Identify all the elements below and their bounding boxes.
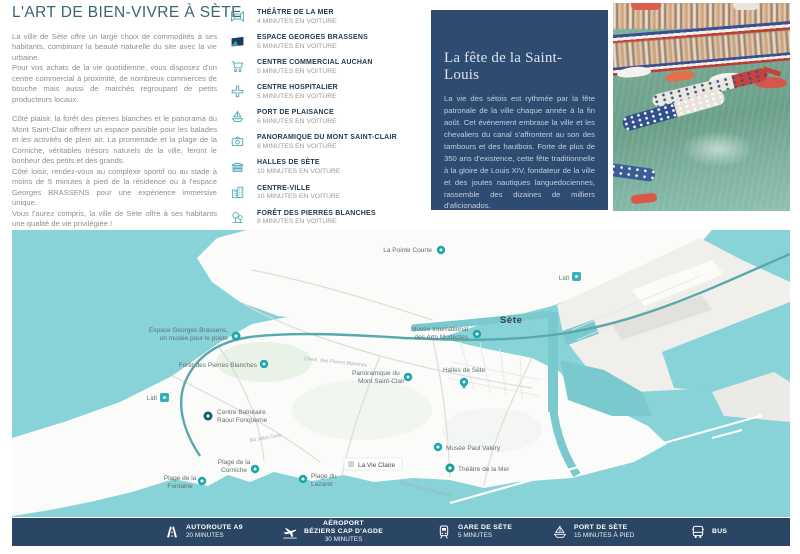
amenity-label: HALLES DE SÈTE	[257, 159, 340, 168]
transport-label: BUS	[712, 528, 727, 536]
map-pin-plage-corniche	[251, 465, 259, 473]
intro-paragraph: Vous l'aurez compris, la ville de Sète o…	[12, 209, 217, 230]
amenity-item: PORT DE PLAISANCE 6 MINUTES EN VOITURE	[229, 109, 424, 127]
amenity-time: 5 MINUTES EN VOITURE	[257, 43, 368, 52]
transport-item-autoroute: AUTOROUTE A9 20 MINUTES	[164, 518, 243, 546]
amenity-time: 10 MINUTES EN VOITURE	[257, 193, 340, 202]
amenity-time: 6 MINUTES EN VOITURE	[257, 118, 337, 127]
transport-time: 5 MINUTES	[458, 532, 512, 540]
map-label-centre-balneaire: Centre Balnéaire	[217, 409, 266, 416]
photo-awning	[733, 3, 759, 10]
map-pin-lidl-west-dot	[163, 396, 166, 399]
amenity-item: CENTRE-VILLE 10 MINUTES EN VOITURE	[229, 185, 424, 203]
medical-cross-icon	[229, 84, 253, 100]
transport-label: PORT DE SÈTE	[574, 524, 634, 532]
map-label-plage-lazaret: Plage du	[311, 473, 337, 480]
map-pin-la-pointe-courte	[437, 246, 445, 254]
map-label-panoramique: Panoramique du	[352, 370, 400, 377]
amenity-item: CENTRE HOSPITALIER 5 MINUTES EN VOITURE	[229, 84, 424, 102]
transport-time: 30 MINUTES	[304, 536, 383, 544]
map-pin-musee-arts-modestes	[473, 330, 481, 338]
market-hall-icon	[229, 159, 253, 175]
amenity-time: 5 MINUTES EN VOITURE	[257, 68, 373, 77]
amenity-time: 8 MINUTES EN VOITURE	[257, 218, 376, 227]
map-pin-espace-brassens	[232, 332, 241, 341]
amenity-label: PORT DE PLAISANCE	[257, 109, 337, 118]
map-label-la-pointe-courte: La Pointe Courte	[383, 247, 432, 254]
feature-body: La vie des sétois est rythmée par la fêt…	[444, 93, 595, 212]
transport-item-gare: GARE DE SÈTE 5 MINUTES	[436, 518, 512, 546]
map-label-lidl-west: Lidl	[147, 395, 158, 402]
amenities-list: THÉÂTRE DE LA MER 4 MINUTES EN VOITURE E…	[229, 9, 424, 235]
map-label-foret-pierres-blanches: Forêt des Pierres Blanches	[179, 362, 258, 369]
amenity-label: FORÊT DES PIERRES BLANCHES	[257, 210, 376, 219]
map-label-espace-brassens: un musée pour le poète	[160, 335, 229, 342]
intro-section: L'ART DE BIEN-VIVRE À SÈTE La ville de S…	[12, 4, 217, 229]
intro-paragraph: Côté loisir, rendez-vous au complexe spo…	[12, 167, 217, 209]
intro-paragraph: Pour vos achats de la vie quotidienne, v…	[12, 63, 217, 105]
city-map: La Vie Claire La Pointe Courte Sète Musé…	[12, 230, 790, 517]
amenity-time: 4 MINUTES EN VOITURE	[257, 18, 337, 27]
transport-time: 15 MINUTES À PIED	[574, 532, 634, 540]
sailboat-icon	[229, 109, 253, 125]
amenity-label: CENTRE HOSPITALIER	[257, 84, 338, 93]
transport-label: AUTOROUTE A9	[186, 524, 243, 532]
page-title: L'ART DE BIEN-VIVRE À SÈTE	[12, 4, 217, 22]
amenity-item: HALLES DE SÈTE 10 MINUTES EN VOITURE	[229, 159, 424, 177]
amenity-label: PANORAMIQUE DU MONT SAINT-CLAIR	[257, 134, 397, 143]
amenity-time: 10 MINUTES EN VOITURE	[257, 168, 340, 177]
feature-box: La fête de la Saint-Louis La vie des sét…	[431, 10, 608, 210]
theater-icon	[229, 9, 253, 25]
map-pin-musee-paul-valery	[434, 443, 442, 451]
plane-icon	[282, 524, 298, 540]
map-pin-theatre-de-la-mer	[446, 464, 455, 473]
map-label-lidl-north: Lidl	[559, 275, 570, 282]
bus-icon	[690, 524, 706, 540]
transport-item-bus: BUS	[690, 518, 727, 546]
amenity-label: CENTRE-VILLE	[257, 185, 340, 194]
transport-label: GARE DE SÈTE	[458, 524, 512, 532]
map-label-plage-fontaine: Fontaine	[167, 483, 193, 490]
map-hill	[292, 380, 432, 440]
amenity-time: 5 MINUTES EN VOITURE	[257, 93, 338, 102]
map-label-plage-corniche: Corniche	[221, 467, 247, 474]
brochure-page: L'ART DE BIEN-VIVRE À SÈTE La ville de S…	[0, 0, 800, 554]
intro-paragraph: Côté plaisir, la forêt des pierres blanc…	[12, 114, 217, 166]
amenity-item: CENTRE COMMERCIAL AUCHAN 5 MINUTES EN VO…	[229, 59, 424, 77]
transport-item-port: PORT DE SÈTE 15 MINUTES À PIED	[552, 518, 634, 546]
brassens-logo-icon	[229, 34, 253, 50]
highway-icon	[164, 524, 180, 540]
transport-bar: AUTOROUTE A9 20 MINUTES AÉROPORT BÉZIERS…	[12, 518, 790, 546]
transport-sublabel: BÉZIERS CAP D'AGDE	[304, 528, 383, 536]
amenity-time: 6 MINUTES EN VOITURE	[257, 143, 397, 152]
buildings-icon	[229, 185, 253, 201]
map-label-halles-de-sete: Halles de Sète	[443, 367, 486, 374]
amenity-item: FORÊT DES PIERRES BLANCHES 8 MINUTES EN …	[229, 210, 424, 228]
transport-time: 20 MINUTES	[186, 532, 243, 540]
amenity-item: THÉÂTRE DE LA MER 4 MINUTES EN VOITURE	[229, 9, 424, 27]
map-pin-lidl-north-dot	[575, 275, 578, 278]
amenity-item: ESPACE GEORGES BRASSENS 5 MINUTES EN VOI…	[229, 34, 424, 52]
map-label-plage-corniche: Plage de la	[218, 459, 251, 466]
map-pin-plage-lazaret	[299, 475, 307, 483]
amenity-label: CENTRE COMMERCIAL AUCHAN	[257, 59, 373, 68]
map-jetty-end	[758, 414, 762, 418]
map-label-la-vie-claire-box: La Vie Claire	[344, 458, 402, 470]
map-label-espace-brassens: Espace Georges Brassens,	[149, 327, 228, 334]
map-label-centre-balneaire: Raoul Fonquerne	[217, 417, 268, 424]
feature-title: La fête de la Saint-Louis	[444, 50, 595, 84]
map-pin-centre-balneaire	[204, 412, 213, 421]
map-label-la-vie-claire: La Vie Claire	[358, 462, 395, 469]
map-label-panoramique: Mont Saint-Clair	[358, 378, 405, 385]
intro-paragraph: La ville de Sète offre un large choix de…	[12, 32, 217, 63]
map-pin-panoramique	[404, 373, 412, 381]
amenity-item: PANORAMIQUE DU MONT SAINT-CLAIR 6 MINUTE…	[229, 134, 424, 152]
sailboat-icon	[552, 524, 568, 540]
map-label-plage-lazaret: Lazaret	[311, 481, 333, 488]
map-label-theatre-de-la-mer: Théâtre de la Mer	[458, 466, 510, 473]
train-icon	[436, 524, 452, 540]
map-pier	[467, 230, 476, 250]
jousting-photo	[613, 3, 790, 211]
shopping-cart-icon	[229, 59, 253, 75]
transport-item-aeroport: AÉROPORT BÉZIERS CAP D'AGDE 30 MINUTES	[282, 518, 383, 546]
map-canvas: La Vie Claire La Pointe Courte Sète Musé…	[12, 230, 790, 517]
map-pin-plage-fontaine	[198, 477, 206, 485]
amenity-label: THÉÂTRE DE LA MER	[257, 9, 337, 18]
photo-awning	[631, 3, 661, 10]
amenity-label: ESPACE GEORGES BRASSENS	[257, 34, 368, 43]
camera-icon	[229, 134, 253, 150]
map-label-sete: Sète	[500, 315, 522, 326]
photo-splash	[681, 131, 755, 167]
map-label-musee-arts-modestes: Musée International	[411, 326, 469, 333]
map-label-musee-paul-valery: Musée Paul Valéry	[446, 445, 501, 452]
trees-icon	[229, 210, 253, 226]
map-label-musee-arts-modestes: des Arts Modestes	[415, 334, 469, 341]
map-label-plage-fontaine: Plage de la	[164, 475, 197, 482]
map-pin-foret-pierres-blanches	[260, 360, 268, 368]
transport-label: AÉROPORT	[304, 520, 383, 528]
